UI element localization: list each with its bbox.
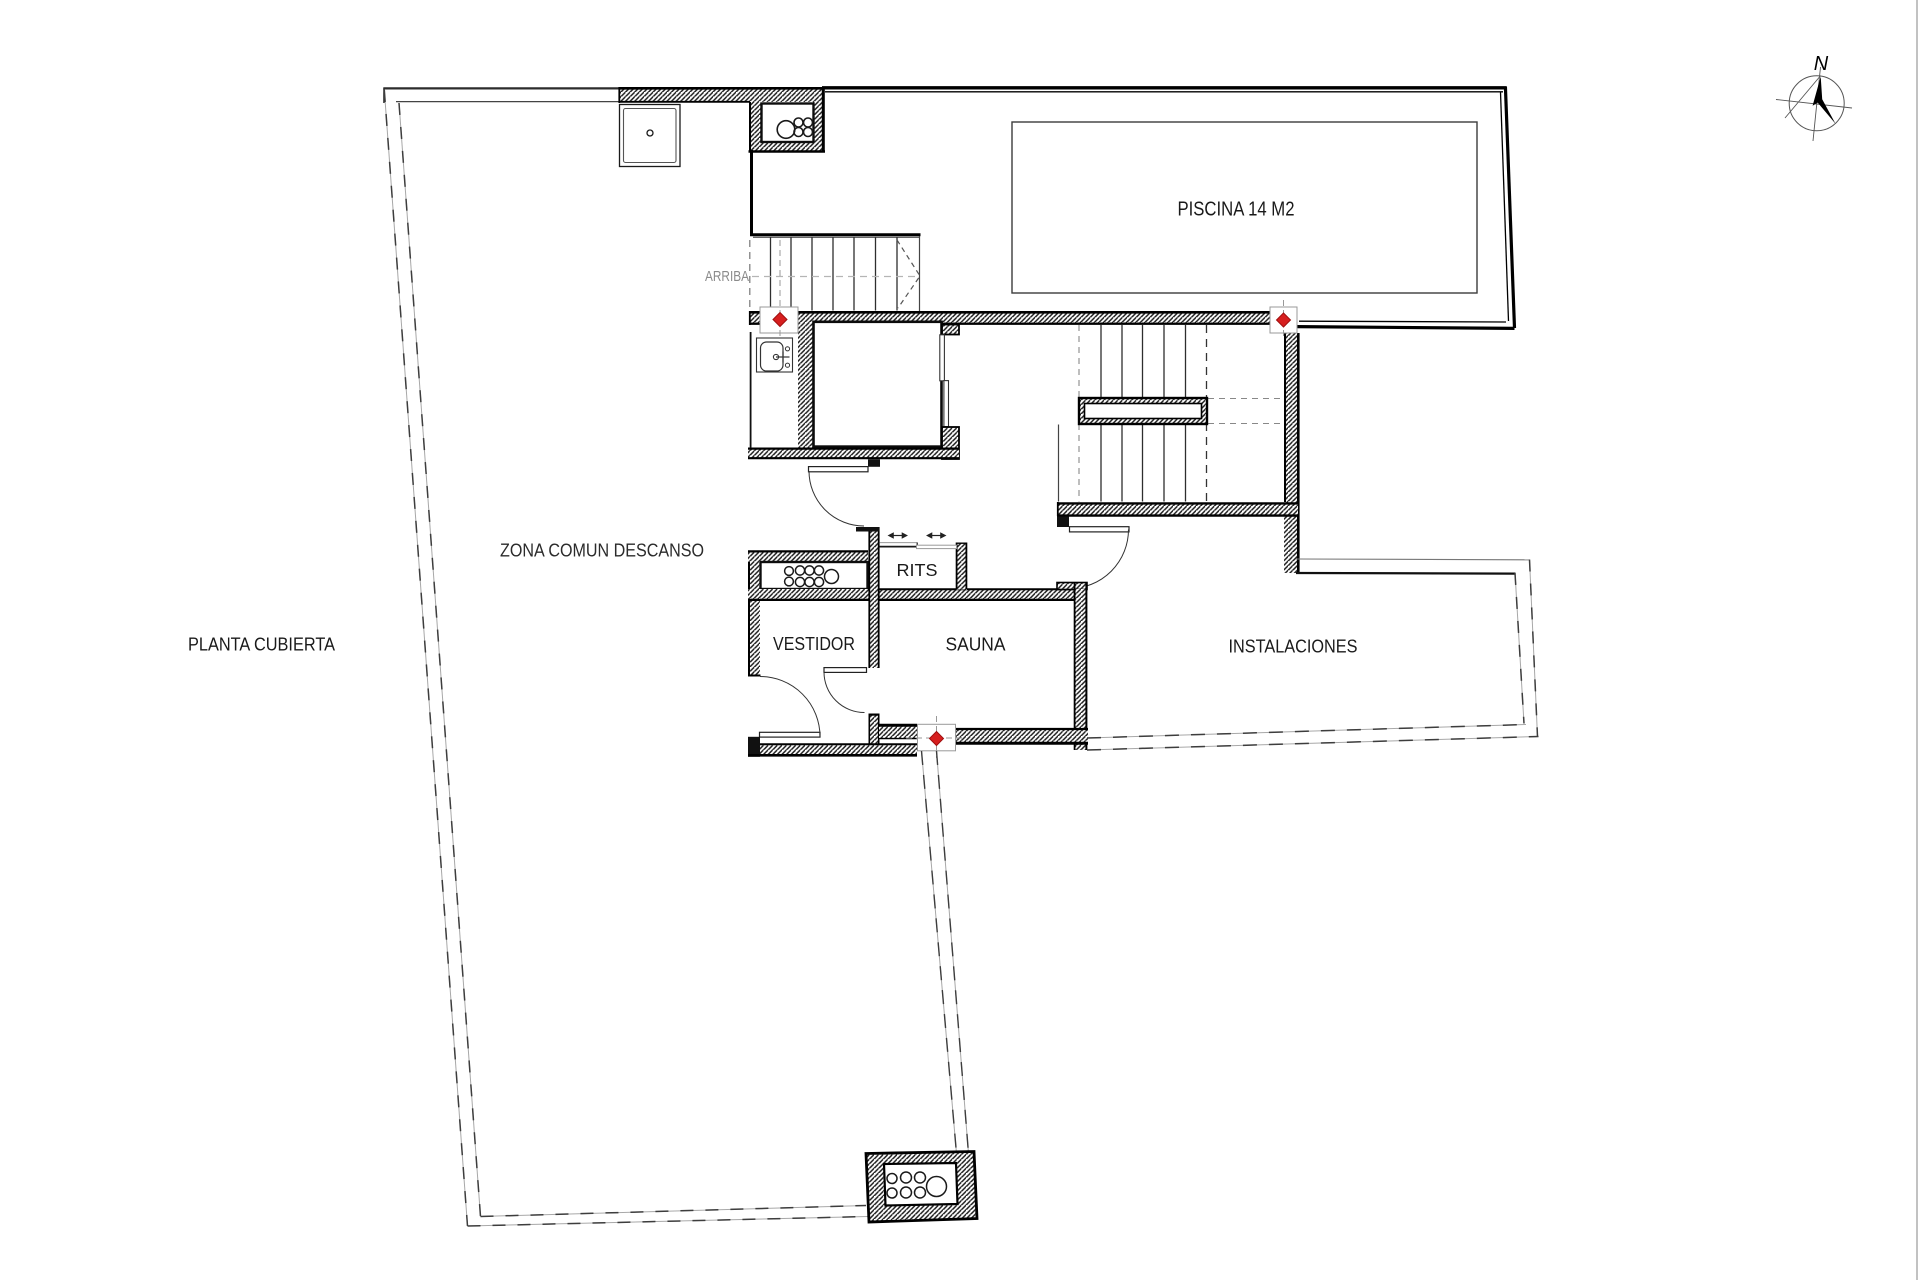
svg-text:VESTIDOR: VESTIDOR: [773, 634, 855, 654]
svg-text:PLANTA CUBIERTA: PLANTA CUBIERTA: [188, 634, 336, 655]
svg-text:RITS: RITS: [897, 560, 938, 580]
svg-text:ZONA COMUN DESCANSO: ZONA COMUN DESCANSO: [500, 540, 704, 561]
svg-text:N: N: [1814, 53, 1829, 75]
svg-text:INSTALACIONES: INSTALACIONES: [1229, 636, 1358, 657]
svg-text:PISCINA 14 M2: PISCINA 14 M2: [1178, 199, 1295, 221]
svg-text:ARRIBA: ARRIBA: [705, 268, 749, 285]
svg-text:SAUNA: SAUNA: [946, 635, 1006, 655]
